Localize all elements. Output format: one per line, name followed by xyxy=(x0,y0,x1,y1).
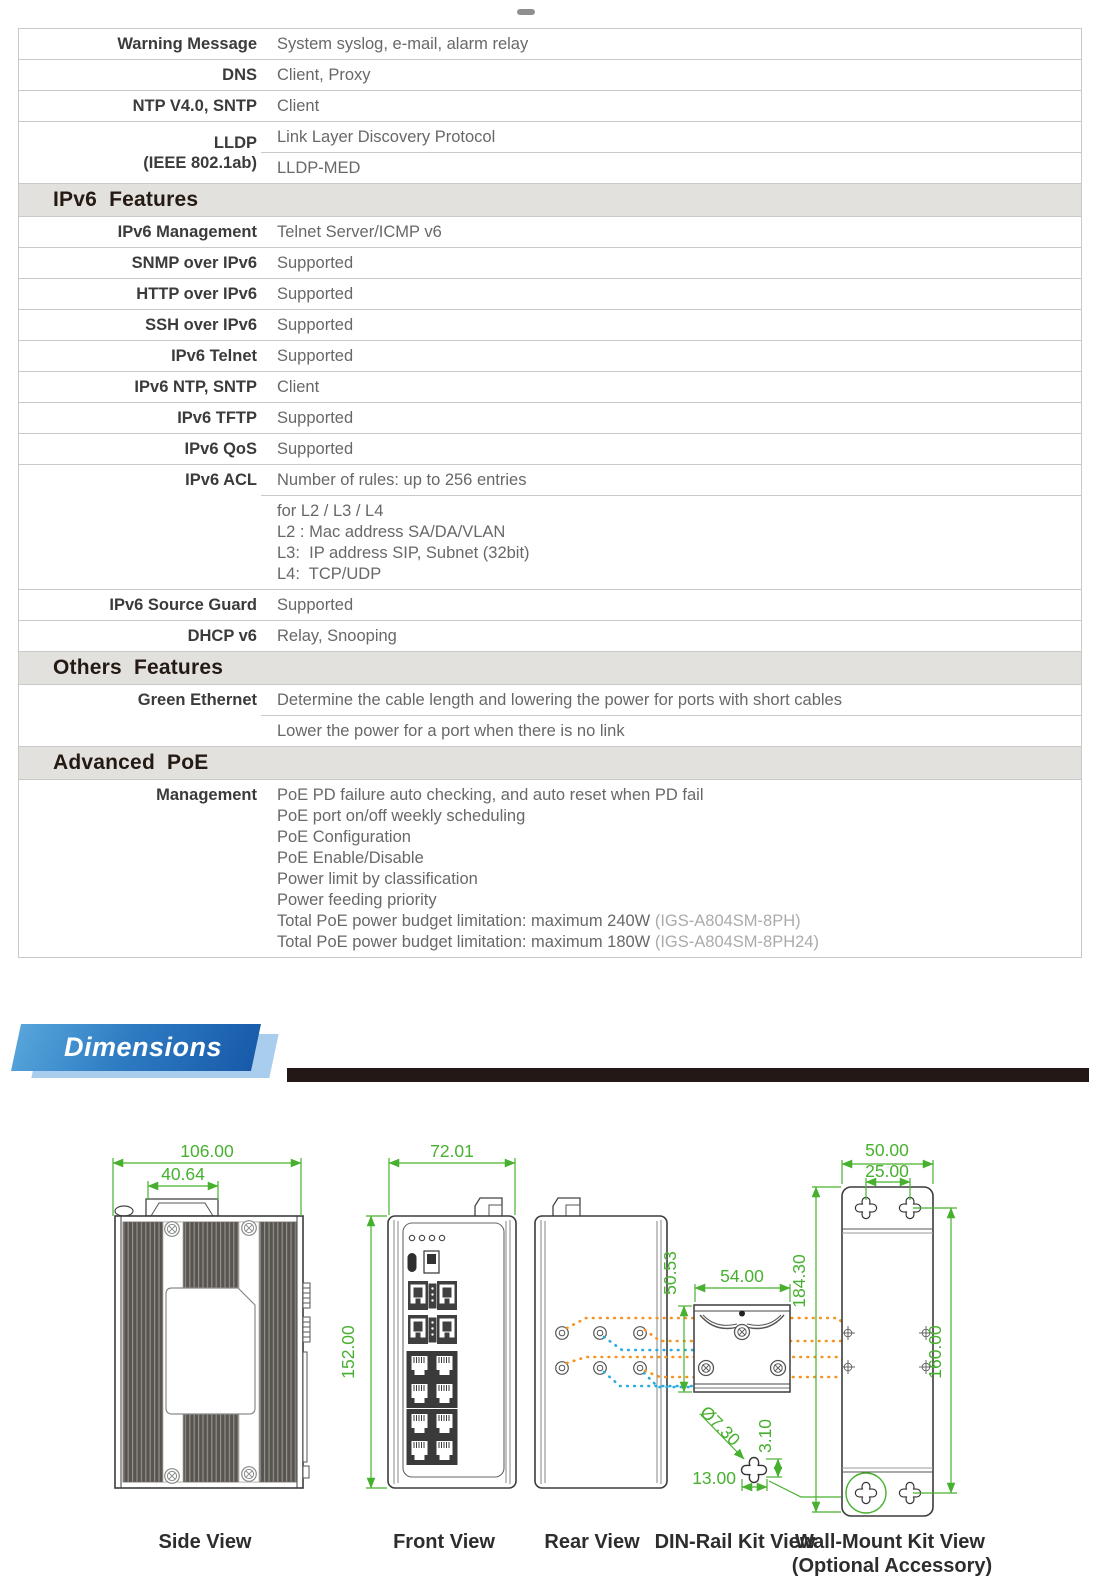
spec-value-line: PoE port on/off weekly scheduling xyxy=(277,806,1073,827)
spec-value-line: L2 : Mac address SA/DA/VLAN xyxy=(277,522,1073,543)
spec-value-line: PoE PD failure auto checking, and auto r… xyxy=(277,785,1073,806)
spec-values: Number of rules: up to 256 entriesfor L2… xyxy=(261,465,1081,589)
dim-front-height: 152.00 xyxy=(338,1325,358,1379)
dimensions-banner: Dimensions xyxy=(8,1020,308,1086)
spec-value-line: L4: TCP/UDP xyxy=(277,564,1073,585)
section-header: IPv6 Features xyxy=(19,184,1081,217)
spec-row: NTP V4.0, SNTPClient xyxy=(19,91,1081,122)
spec-label: IPv6 Telnet xyxy=(19,341,261,371)
usb-c-port xyxy=(408,1253,417,1272)
spec-label: DHCP v6 xyxy=(19,621,261,651)
spec-row: SSH over IPv6Supported xyxy=(19,310,1081,341)
front-view-label: Front View xyxy=(393,1531,495,1553)
spec-value-cell: Telnet Server/ICMP v6 xyxy=(261,217,1081,247)
spec-value-cell: Supported xyxy=(261,248,1081,278)
spec-value-line: Link Layer Discovery Protocol xyxy=(277,127,1073,148)
spec-value-line: Power feeding priority xyxy=(277,890,1073,911)
spec-value-line: Power limit by classification xyxy=(277,869,1073,890)
spec-values: Client, Proxy xyxy=(261,60,1081,90)
spec-value-line: for L2 / L3 / L4 xyxy=(277,501,1073,522)
dim-din-width: 54.00 xyxy=(720,1266,764,1286)
spec-value-line: Supported xyxy=(277,253,1073,274)
section-header: Advanced PoE xyxy=(19,747,1081,780)
spec-row: SNMP over IPv6Supported xyxy=(19,248,1081,279)
spec-row: ManagementPoE PD failure auto checking, … xyxy=(19,780,1081,958)
spec-value-line: Telnet Server/ICMP v6 xyxy=(277,222,1073,243)
dim-front-width: 72.01 xyxy=(430,1141,474,1161)
spec-label: SNMP over IPv6 xyxy=(19,248,261,278)
spec-values: Client xyxy=(261,91,1081,121)
spec-row: IPv6 NTP, SNTPClient xyxy=(19,372,1081,403)
spec-value-line: Determine the cable length and lowering … xyxy=(277,690,1073,711)
spec-row: HTTP over IPv6Supported xyxy=(19,279,1081,310)
spec-row: DNSClient, Proxy xyxy=(19,60,1081,91)
spec-value-cell: Number of rules: up to 256 entries xyxy=(261,465,1081,495)
spec-value-line: Supported xyxy=(277,315,1073,336)
spec-value-line: Supported xyxy=(277,284,1073,305)
spec-label: LLDP(IEEE 802.1ab) xyxy=(19,122,261,183)
spec-row: Warning MessageSystem syslog, e-mail, al… xyxy=(19,29,1081,60)
spec-row: IPv6 TelnetSupported xyxy=(19,341,1081,372)
spec-value-line: Client xyxy=(277,377,1073,398)
side-label-plate xyxy=(166,1288,255,1414)
dim-wall-hole-vertical: 160.00 xyxy=(925,1325,945,1379)
dim-din-height: 50.53 xyxy=(660,1251,680,1295)
din-rail-kit-view-label: DIN-Rail Kit View xyxy=(655,1531,816,1553)
spec-row: LLDP(IEEE 802.1ab)Link Layer Discovery P… xyxy=(19,122,1081,184)
spec-values: Supported xyxy=(261,279,1081,309)
spec-values: Supported xyxy=(261,590,1081,620)
rear-view-label: Rear View xyxy=(544,1531,640,1553)
front-view-drawing xyxy=(388,1198,516,1488)
side-view-drawing xyxy=(115,1199,310,1488)
keyhole-detail xyxy=(742,1458,767,1483)
spec-row: IPv6 Source GuardSupported xyxy=(19,590,1081,621)
spec-label: Green Ethernet xyxy=(19,685,261,746)
spec-value-line: Lower the power for a port when there is… xyxy=(277,721,1073,742)
spec-row: IPv6 ManagementTelnet Server/ICMP v6 xyxy=(19,217,1081,248)
spec-value-line: Supported xyxy=(277,595,1073,616)
spec-label: HTTP over IPv6 xyxy=(19,279,261,309)
spec-value-cell: Supported xyxy=(261,341,1081,371)
spec-value-line: L3: IP address SIP, Subnet (32bit) xyxy=(277,543,1073,564)
dim-wall-height: 184.30 xyxy=(789,1254,809,1308)
model-suffix: (IGS-A804SM-8PH) xyxy=(655,912,801,930)
spec-value-line: Client, Proxy xyxy=(277,65,1073,86)
din-bracket xyxy=(694,1305,790,1392)
spec-value-cell: System syslog, e-mail, alarm relay xyxy=(261,29,1081,59)
rj45-ports xyxy=(407,1351,458,1465)
rear-body xyxy=(535,1216,667,1488)
spec-value-cell: Supported xyxy=(261,434,1081,464)
wall-mount-kit-view-label: Wall-Mount Kit View xyxy=(795,1531,985,1553)
wall-plate xyxy=(842,1187,933,1516)
dim-side-width: 106.00 xyxy=(180,1141,234,1161)
dim-keyhole-width: 13.00 xyxy=(692,1468,736,1488)
din-rail-kit-drawing xyxy=(694,1305,790,1392)
spec-value-line: LLDP-MED xyxy=(277,158,1073,179)
spec-value-cell: Supported xyxy=(261,403,1081,433)
spec-label: NTP V4.0, SNTP xyxy=(19,91,261,121)
spec-value-cell: Supported xyxy=(261,310,1081,340)
spec-value-line: Client xyxy=(277,96,1073,117)
spec-value-line: Relay, Snooping xyxy=(277,626,1073,647)
spec-values: Telnet Server/ICMP v6 xyxy=(261,217,1081,247)
spec-value-line: Total PoE power budget limitation: maxim… xyxy=(277,932,1073,953)
spec-values: PoE PD failure auto checking, and auto r… xyxy=(261,780,1081,957)
spec-value-cell: Client xyxy=(261,372,1081,402)
model-suffix: (IGS-A804SM-8PH24) xyxy=(655,933,819,951)
spec-label: IPv6 NTP, SNTP xyxy=(19,372,261,402)
dim-wall-width: 50.00 xyxy=(865,1140,909,1160)
spec-label: IPv6 QoS xyxy=(19,434,261,464)
dimensions-banner-label: Dimensions xyxy=(16,1024,256,1071)
dim-side-clip-width: 40.64 xyxy=(161,1164,205,1184)
spec-value-cell: Relay, Snooping xyxy=(261,621,1081,651)
spec-values: Supported xyxy=(261,248,1081,278)
side-edge-connectors xyxy=(303,1283,310,1478)
section-header-label: IPv6 Features xyxy=(53,188,198,212)
spec-value-line: System syslog, e-mail, alarm relay xyxy=(277,34,1073,55)
spec-value-line: Supported xyxy=(277,439,1073,460)
dimension-drawings: 106.00 40.64 72.01 152.00 50.53 54.00 xyxy=(0,1100,1100,1589)
spec-row: IPv6 QoSSupported xyxy=(19,434,1081,465)
spec-values: Supported xyxy=(261,310,1081,340)
spec-table: Warning MessageSystem syslog, e-mail, al… xyxy=(18,28,1082,958)
spec-label: SSH over IPv6 xyxy=(19,310,261,340)
spec-value-cell: Determine the cable length and lowering … xyxy=(261,685,1081,715)
spec-values: Client xyxy=(261,372,1081,402)
optional-accessory-note: (Optional Accessory) xyxy=(792,1555,992,1577)
page-top-dash xyxy=(517,9,535,15)
spec-values: System syslog, e-mail, alarm relay xyxy=(261,29,1081,59)
spec-row: IPv6 ACLNumber of rules: up to 256 entri… xyxy=(19,465,1081,590)
spec-value-line: PoE Configuration xyxy=(277,827,1073,848)
spec-row: DHCP v6Relay, Snooping xyxy=(19,621,1081,652)
spec-value-cell: Link Layer Discovery Protocol xyxy=(261,122,1081,152)
spec-value-line: Number of rules: up to 256 entries xyxy=(277,470,1073,491)
rear-view-drawing xyxy=(535,1198,667,1488)
spec-value-line: Supported xyxy=(277,346,1073,367)
spec-value-cell: Client xyxy=(261,91,1081,121)
spec-values: Determine the cable length and lowering … xyxy=(261,685,1081,746)
section-divider-bar xyxy=(287,1068,1089,1082)
section-header-label: Others Features xyxy=(53,656,223,680)
spec-label: IPv6 Management xyxy=(19,217,261,247)
spec-values: Supported xyxy=(261,403,1081,433)
spec-label: IPv6 Source Guard xyxy=(19,590,261,620)
spec-value-cell: Supported xyxy=(261,279,1081,309)
section-header: Others Features xyxy=(19,652,1081,685)
spec-label: IPv6 ACL xyxy=(19,465,261,589)
spec-value-cell: Client, Proxy xyxy=(261,60,1081,90)
spec-row: IPv6 TFTPSupported xyxy=(19,403,1081,434)
spec-value-cell: PoE PD failure auto checking, and auto r… xyxy=(261,780,1081,957)
section-header-label: Advanced PoE xyxy=(53,751,208,775)
spec-values: Relay, Snooping xyxy=(261,621,1081,651)
wall-mount-kit-drawing xyxy=(841,1187,933,1516)
spec-label: DNS xyxy=(19,60,261,90)
spec-values: Supported xyxy=(261,434,1081,464)
spec-values: Link Layer Discovery ProtocolLLDP-MED xyxy=(261,122,1081,183)
spec-value-line: Supported xyxy=(277,408,1073,429)
spec-value-line: Total PoE power budget limitation: maxim… xyxy=(277,911,1073,932)
spec-row: Green EthernetDetermine the cable length… xyxy=(19,685,1081,747)
spec-value-cell: LLDP-MED xyxy=(261,152,1081,183)
banner-blue-plate: Dimensions xyxy=(11,1024,261,1071)
dim-keyhole-diameter: Ø7.30 xyxy=(696,1402,744,1450)
spec-label: IPv6 TFTP xyxy=(19,403,261,433)
side-view-label: Side View xyxy=(158,1531,251,1553)
spec-value-cell: Supported xyxy=(261,590,1081,620)
spec-value-cell: for L2 / L3 / L4L2 : Mac address SA/DA/V… xyxy=(261,495,1081,589)
spec-value-cell: Lower the power for a port when there is… xyxy=(261,715,1081,746)
dim-wall-hole-spacing: 25.00 xyxy=(865,1161,909,1181)
spec-values: Supported xyxy=(261,341,1081,371)
spec-label: Warning Message xyxy=(19,29,261,59)
spec-value-line: PoE Enable/Disable xyxy=(277,848,1073,869)
view-labels: Side View Front View Rear View DIN-Rail … xyxy=(158,1531,992,1577)
dim-keyhole-notch: 3.10 xyxy=(755,1419,775,1453)
spec-label: Management xyxy=(19,780,261,957)
datasheet-page: Warning MessageSystem syslog, e-mail, al… xyxy=(0,0,1100,1589)
